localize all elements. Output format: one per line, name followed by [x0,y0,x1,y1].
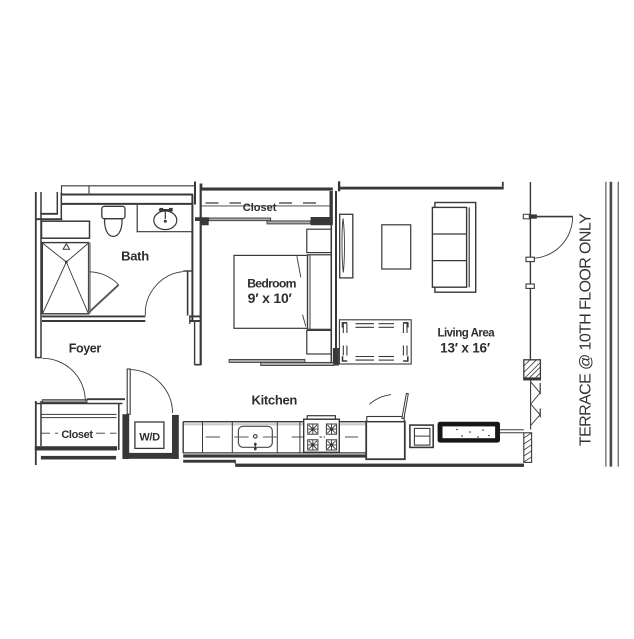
svg-text:13′ x 16′: 13′ x 16′ [440,340,490,355]
svg-text:W/D: W/D [139,432,160,444]
svg-text:Bedroom: Bedroom [247,277,296,291]
svg-text:Living Area: Living Area [437,328,495,340]
svg-text:Foyer: Foyer [69,342,102,356]
svg-text:9′ x 10′: 9′ x 10′ [248,290,293,306]
svg-text:Closet: Closet [61,429,93,441]
svg-text:Bath: Bath [121,249,149,264]
svg-text:Closet: Closet [243,202,277,214]
svg-text:TERRACE @ 10TH FLOOR ONLY: TERRACE @ 10TH FLOOR ONLY [578,213,595,446]
svg-text:Kitchen: Kitchen [252,393,298,408]
